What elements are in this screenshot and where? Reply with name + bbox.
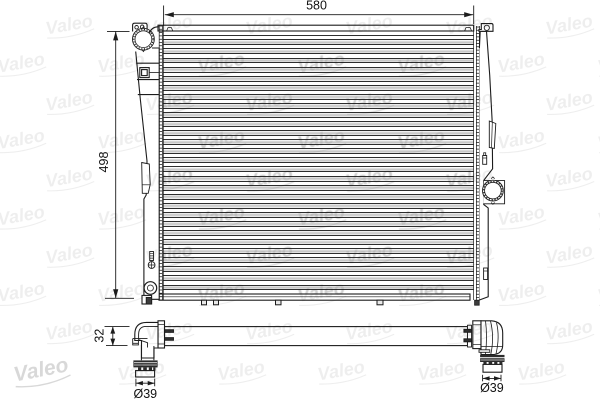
svg-text:32: 32: [92, 329, 106, 343]
svg-text:Ø39: Ø39: [133, 387, 157, 400]
svg-text:498: 498: [97, 152, 111, 173]
svg-text:580: 580: [306, 0, 327, 13]
svg-text:Ø39: Ø39: [480, 381, 504, 395]
